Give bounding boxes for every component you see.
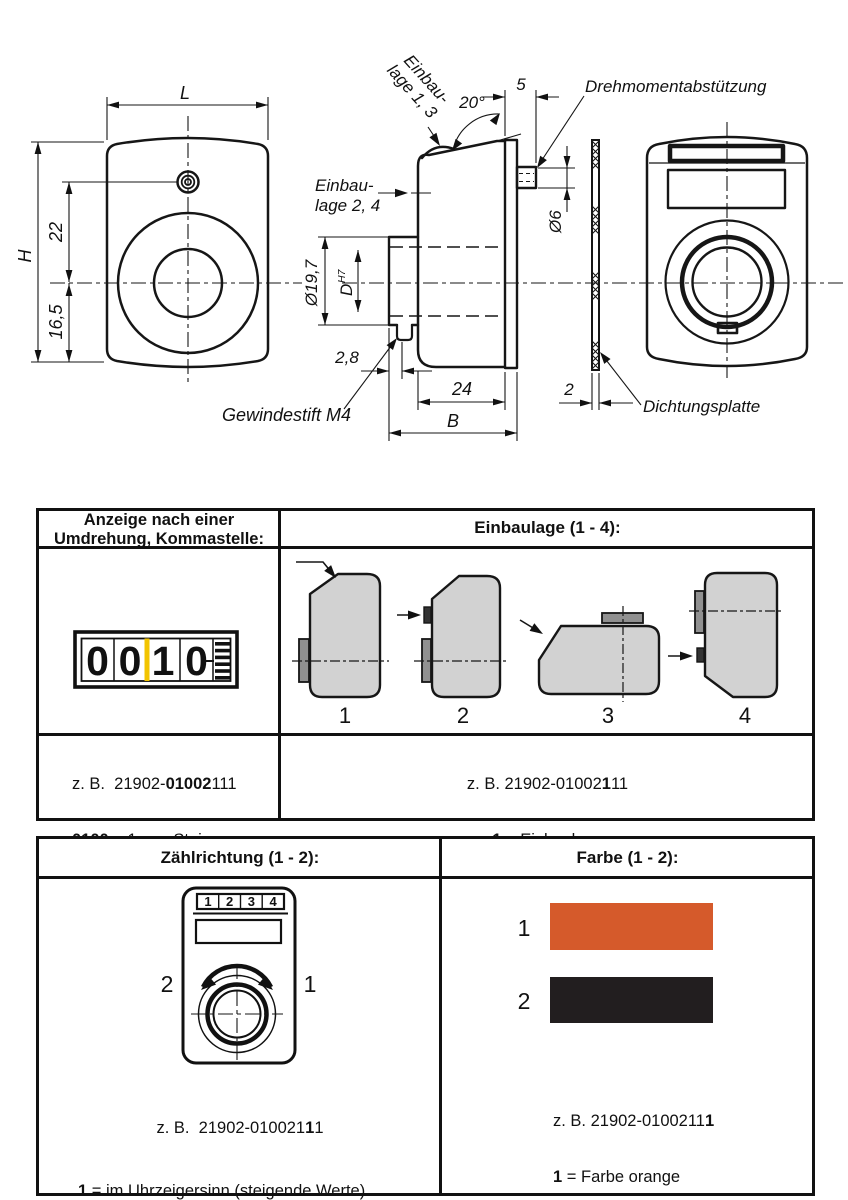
direction-label-1: 1 [304, 971, 317, 997]
label-drehmomentabstuetzung: Drehmomentabstützung [585, 77, 767, 96]
table2-code-left: z. B. 21902-01002111 1 = im Uhrzeigersin… [40, 1076, 440, 1200]
dim-label-dia6: Ø6 [546, 210, 565, 234]
dim-label-H: H [15, 249, 35, 263]
label-einbaulage-2-4-line2: lage 2, 4 [315, 196, 380, 215]
order-code-line: z. B. 21902-01002111 [40, 1118, 440, 1139]
swatch-schwarz [550, 977, 713, 1023]
dim-label-22: 22 [46, 222, 66, 243]
catalog-page: L H 22 16,5 [0, 0, 848, 1200]
dim-label-20deg: 20° [458, 93, 485, 112]
order-code-line: z. B. 21902-01002111 [553, 1112, 714, 1131]
label-gewindestift: Gewindestift M4 [222, 405, 351, 425]
dim-label-D: D [337, 284, 356, 296]
table2-header-divider [38, 876, 813, 879]
swatch-label-1: 1 [518, 915, 531, 941]
code-explanation-line: 1 = Farbe orange [553, 1168, 714, 1187]
knob-digit-2: 2 [226, 894, 233, 909]
front-view: L H 22 16,5 [15, 83, 302, 386]
zaehlrichtung-figure: 1 2 3 4 2 1 [39, 881, 441, 1073]
einbaulage-number-2: 2 [457, 703, 469, 728]
dim-label-B: B [447, 411, 459, 431]
dim-label-L: L [180, 83, 190, 103]
order-code-line: z. B. 21902-01002111 [282, 775, 813, 794]
farbe-swatches-figure: 1 2 [445, 881, 813, 1073]
einbaulage-position-3: 3 [520, 606, 659, 728]
direction-label-2: 2 [161, 971, 174, 997]
counter-display-figure: 0 0 1 0 [39, 551, 281, 731]
table2-header-left: Zählrichtung (1 - 2): [40, 848, 440, 867]
dim-label-5: 5 [516, 75, 526, 94]
table1-header-right: Einbaulage (1 - 4): [282, 518, 813, 537]
table1-header-left-line2: Umdrehung, Kommastelle: [40, 530, 278, 549]
einbaulage-number-3: 3 [602, 703, 614, 728]
einbaulage-positions-figure: 1 2 3 4 [284, 551, 812, 731]
dim-label-dia197: Ø19,7 [302, 259, 321, 307]
table1-header-left: Anzeige nach einer Umdrehung, Kommastell… [40, 511, 278, 549]
comma-position-marker [145, 639, 150, 682]
knob-digit-4: 4 [269, 894, 277, 909]
dim-label-24: 24 [451, 379, 472, 399]
swatch-orange [550, 903, 713, 950]
einbaulage-position-1: 1 [292, 562, 389, 728]
einbaulage-number-1: 1 [339, 703, 351, 728]
counter-digit-2: 0 [119, 638, 142, 684]
dim-label-D-tolerance: H7 [336, 268, 348, 283]
label-dichtungsplatte: Dichtungsplatte [643, 397, 760, 416]
einbaulage-number-4: 4 [739, 703, 751, 728]
side-view: Ø19,7 D H7 2,8 24 B [222, 48, 767, 441]
counter-digit-3: 1 [152, 638, 175, 684]
dim-label-2: 2 [563, 380, 574, 399]
back-view [612, 122, 844, 378]
einbaulage-position-2: 2 [397, 576, 509, 728]
swatch-label-2: 2 [518, 988, 531, 1014]
table2-header-right: Farbe (1 - 2): [442, 848, 813, 867]
counter-digit-1: 0 [86, 638, 109, 684]
dim-label-165: 16,5 [46, 304, 66, 340]
dim-label-28: 2,8 [334, 348, 359, 367]
label-einbaulage-2-4-line1: Einbau- [315, 176, 374, 195]
einbaulage-position-4: 4 [668, 573, 784, 728]
code-explanation-line: 1 = im Uhrzeigersinn (steigende Werte) [40, 1181, 440, 1200]
table2-code-right: z. B. 21902-01002111 1 = Farbe orange 2 … [553, 1075, 714, 1200]
knob-digit-1: 1 [204, 894, 211, 909]
table1-foot-divider [38, 733, 813, 736]
knob-digit-3: 3 [248, 894, 255, 909]
technical-drawing: L H 22 16,5 [0, 0, 848, 480]
order-code-line: z. B. 21902-01002111 [72, 775, 256, 794]
table1-header-left-line1: Anzeige nach einer [40, 511, 278, 530]
